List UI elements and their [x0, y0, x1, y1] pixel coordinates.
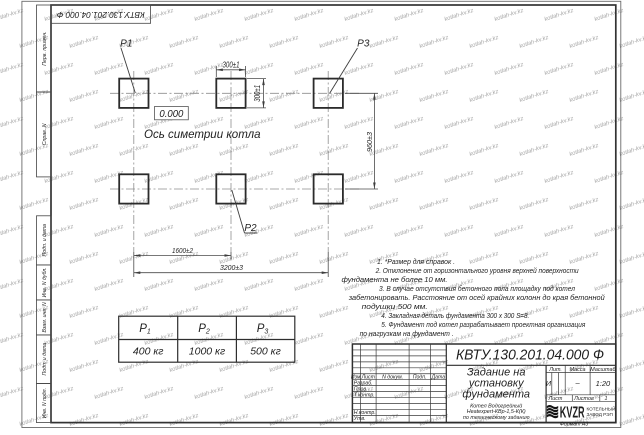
svg-text:P3: P3	[357, 38, 370, 49]
svg-text:Т.контр.: Т.контр.	[354, 392, 375, 398]
svg-text:1: 1	[605, 396, 608, 402]
svg-text:P2: P2	[244, 223, 257, 234]
svg-text:по техническому заданию: по техническому заданию	[463, 415, 530, 421]
svg-text:фундамента не более 10 мм.: фундамента не более 10 мм.	[342, 275, 448, 284]
svg-text:Утв.: Утв.	[354, 416, 366, 422]
svg-text:Ось симетрии котла: Ось симетрии котла	[144, 129, 261, 141]
svg-text:–: –	[575, 379, 581, 388]
svg-text:3. В случае отсутствия бетонн: 3. В случае отсутствия бетонного пола пл…	[379, 284, 576, 293]
svg-text:КВТУ.130.201.04.000 Ф: КВТУ.130.201.04.000 Ф	[56, 10, 144, 19]
svg-text:3200±3: 3200±3	[220, 263, 244, 272]
svg-text:2. Отклонение от горизонтальн: 2. Отклонение от горизонтального уровня …	[375, 266, 579, 275]
svg-text:960±3: 960±3	[365, 131, 374, 152]
svg-text:5. Фундамент под котел разраб: 5. Фундамент под котел разрабатывает про…	[381, 320, 585, 329]
svg-text:1000 кг: 1000 кг	[189, 346, 225, 358]
svg-text:Листов: Листов	[573, 396, 594, 402]
svg-text:Масса: Масса	[570, 367, 586, 373]
svg-text:Подп. и дата: Подп. и дата	[42, 224, 48, 257]
svg-text:КОТЕЛЬНЫЙ: КОТЕЛЬНЫЙ	[587, 405, 616, 412]
svg-text:забетонировать. Расстояние от: забетонировать. Расстояние от осей крайн…	[348, 293, 605, 302]
svg-text:Формат А3: Формат А3	[560, 422, 588, 428]
svg-text:Перв. примен.: Перв. примен.	[42, 31, 48, 65]
svg-text:4. Закладная деталь фундамент: 4. Закладная деталь фундамента 300 x 300…	[381, 311, 529, 320]
svg-text:1:20: 1:20	[596, 379, 611, 388]
svg-text:Инв. N подл.: Инв. N подл.	[42, 388, 48, 418]
svg-text:Дата: Дата	[430, 374, 445, 380]
svg-text:400 кг: 400 кг	[133, 346, 164, 358]
svg-text:0.000: 0.000	[159, 109, 184, 120]
svg-text:ЗАВОД РЭП: ЗАВОД РЭП	[587, 412, 613, 417]
svg-text:по нагрузкам на фундамент .: по нагрузкам на фундамент .	[360, 329, 454, 338]
svg-text:Взам. инв. N: Взам. инв. N	[42, 302, 48, 332]
svg-text:Инв. N дубл.: Инв. N дубл.	[42, 267, 48, 297]
svg-text:300±1: 300±1	[253, 85, 262, 102]
svg-text:Масштаб: Масштаб	[590, 367, 616, 373]
svg-text:Лист: Лист	[548, 396, 563, 402]
svg-text:P1: P1	[120, 38, 132, 49]
svg-text:N докум.: N докум.	[382, 374, 403, 380]
svg-text:500 кг: 500 кг	[250, 346, 281, 358]
svg-text:KVZR: KVZR	[560, 404, 585, 421]
svg-text:Подп.: Подп.	[413, 374, 427, 380]
svg-text:Heatexpert-КВр-1,5-К(К): Heatexpert-КВр-1,5-К(К)	[467, 409, 526, 415]
svg-text:И: И	[546, 379, 552, 388]
svg-text:1600±2: 1600±2	[172, 246, 194, 255]
svg-text:Лит.: Лит.	[548, 367, 562, 373]
svg-text:300±1: 300±1	[223, 61, 240, 70]
svg-text:Подп. и дата: Подп. и дата	[42, 343, 48, 376]
svg-text:КВТУ.130.201.04.000 Ф: КВТУ.130.201.04.000 Ф	[456, 348, 604, 364]
svg-text:фундамента: фундамента	[462, 389, 530, 401]
svg-text:подушки 500 мм.: подушки 500 мм.	[362, 302, 428, 311]
svg-text:1. *Размер для справок .: 1. *Размер для справок .	[377, 257, 455, 266]
svg-text:Справ. N: Справ. N	[42, 123, 48, 145]
